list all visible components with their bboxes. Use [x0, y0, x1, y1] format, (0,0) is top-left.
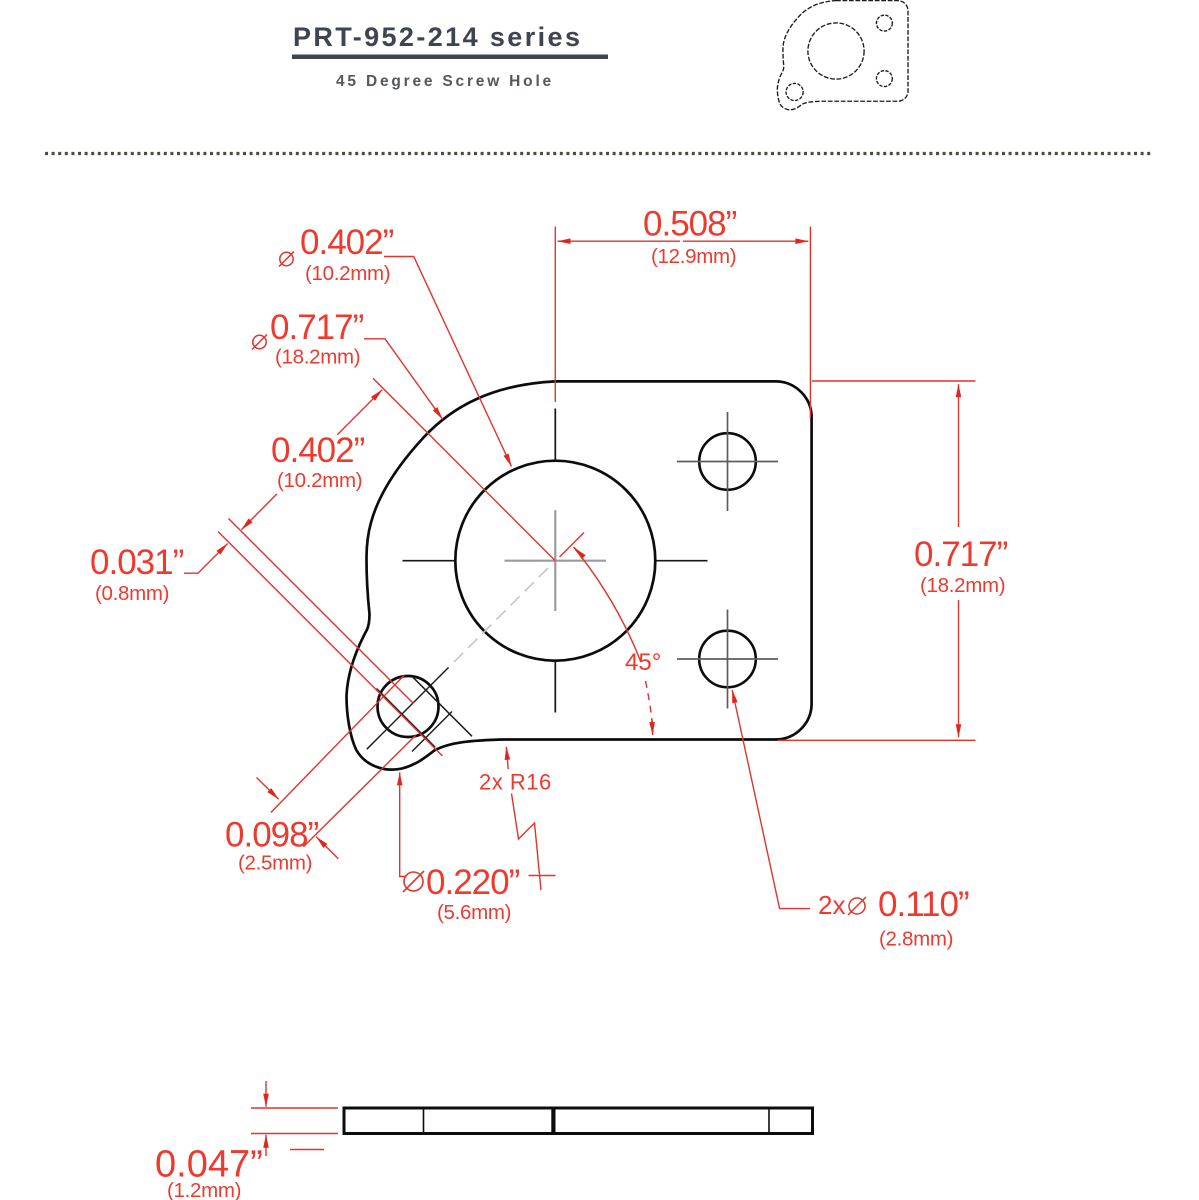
svg-text:0.508”: 0.508”: [643, 205, 737, 244]
svg-text:(12.9mm): (12.9mm): [651, 245, 736, 268]
svg-text:(2.8mm): (2.8mm): [879, 928, 953, 951]
svg-text:0.110”: 0.110”: [878, 885, 969, 924]
svg-text:2x: 2x: [818, 890, 845, 920]
svg-text:0.031”: 0.031”: [90, 543, 184, 582]
svg-text:(18.2mm): (18.2mm): [920, 574, 1005, 597]
svg-text:(18.2mm): (18.2mm): [275, 346, 360, 369]
svg-text:0.717”: 0.717”: [914, 535, 1008, 574]
svg-text:45 Degree Screw Hole: 45 Degree Screw Hole: [336, 73, 554, 90]
svg-text:2x R16: 2x R16: [479, 770, 552, 795]
svg-text:0.402”: 0.402”: [271, 431, 365, 470]
svg-text:0.220”: 0.220”: [426, 863, 520, 902]
svg-text:(2.5mm): (2.5mm): [238, 852, 312, 875]
svg-text:(10.2mm): (10.2mm): [305, 262, 390, 285]
svg-text:(5.6mm): (5.6mm): [437, 901, 511, 924]
svg-text:0.402”: 0.402”: [300, 223, 394, 262]
svg-text:0.098”: 0.098”: [225, 816, 319, 855]
svg-text:0.717”: 0.717”: [270, 308, 364, 347]
svg-text:PRT-952-214 series: PRT-952-214 series: [293, 22, 582, 52]
svg-text:(10.2mm): (10.2mm): [277, 469, 362, 492]
svg-text:45°: 45°: [625, 649, 661, 676]
svg-text:(1.2mm): (1.2mm): [167, 1179, 241, 1200]
svg-text:(0.8mm): (0.8mm): [95, 582, 169, 605]
